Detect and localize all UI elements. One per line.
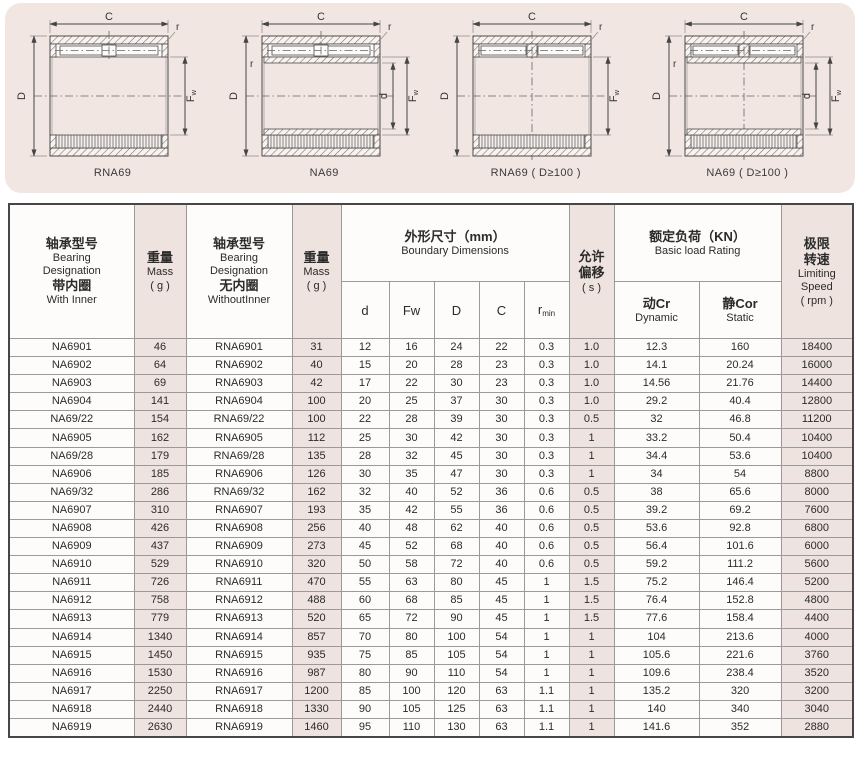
- cell-bore-d: 75: [341, 646, 389, 664]
- cell-bore-d: 85: [341, 682, 389, 700]
- col-header-raceway-fw: Fw: [389, 282, 434, 339]
- cell-designation-without-inner: RNA6908: [186, 519, 292, 537]
- cell-limiting-speed-rpm: 10400: [781, 429, 853, 447]
- cell-designation-with-inner: NA6907: [9, 501, 134, 519]
- cell-designation-without-inner: RNA69/22: [186, 411, 292, 429]
- cell-chamfer-rmin: 0.6: [524, 519, 569, 537]
- cell-mass-with-inner-g: 162: [134, 429, 186, 447]
- svg-text:Fw: Fw: [407, 89, 420, 102]
- cell-limiting-speed-rpm: 18400: [781, 339, 853, 357]
- cell-outer-d: 68: [434, 538, 479, 556]
- col-header-allowable-offset: 允许 偏移 ( s ): [569, 204, 614, 339]
- bearing-spec-table: 轴承型号 Bearing Designation 带内圈 With Inner …: [8, 203, 854, 738]
- cell-designation-with-inner: NA69/22: [9, 411, 134, 429]
- cell-limiting-speed-rpm: 3760: [781, 646, 853, 664]
- cell-chamfer-rmin: 0.3: [524, 339, 569, 357]
- header-zh: 轴承型号: [187, 236, 292, 252]
- header-en: Basic load Rating: [615, 245, 781, 258]
- table-row: NA6907310RNA6907193354255360.60.539.269.…: [9, 501, 853, 519]
- cell-outer-d: 72: [434, 556, 479, 574]
- cell-raceway-fw: 58: [389, 556, 434, 574]
- cell-outer-d: 120: [434, 682, 479, 700]
- cell-mass-with-inner-g: 779: [134, 610, 186, 628]
- header-en: Bearing: [10, 252, 134, 265]
- header-en: Dynamic: [615, 312, 699, 325]
- cell-limiting-speed-rpm: 14400: [781, 375, 853, 393]
- header-zh: 偏移: [570, 265, 614, 281]
- cell-outer-d: 90: [434, 610, 479, 628]
- header-en: Designation: [187, 265, 292, 278]
- cell-width-c: 45: [479, 592, 524, 610]
- cell-bore-d: 65: [341, 610, 389, 628]
- table-row: NA69151450RNA691593575851055411105.6221.…: [9, 646, 853, 664]
- cell-limiting-speed-rpm: 4400: [781, 610, 853, 628]
- col-header-outer-d: D: [434, 282, 479, 339]
- cell-designation-with-inner: NA6915: [9, 646, 134, 664]
- cell-designation-with-inner: NA6910: [9, 556, 134, 574]
- rmin-sub: min: [542, 309, 555, 318]
- cell-limiting-speed-rpm: 2880: [781, 718, 853, 737]
- cell-mass-with-inner-g: 437: [134, 538, 186, 556]
- col-header-limiting-speed: 极限 转速 Limiting Speed ( rpm ): [781, 204, 853, 339]
- cell-designation-with-inner: NA6902: [9, 357, 134, 375]
- cell-allowable-offset-s: 1: [569, 465, 614, 483]
- cell-raceway-fw: 52: [389, 538, 434, 556]
- cell-designation-with-inner: NA6912: [9, 592, 134, 610]
- cell-designation-with-inner: NA6914: [9, 628, 134, 646]
- svg-text:r: r: [250, 59, 254, 70]
- cell-mass-without-inner-g: 488: [292, 592, 341, 610]
- cell-outer-d: 130: [434, 718, 479, 737]
- cell-designation-with-inner: NA6916: [9, 664, 134, 682]
- cell-bore-d: 45: [341, 538, 389, 556]
- diagram-panel: CDFwrRNA69 CDdFwrrNA69 CDFwrRNA69 ( D≥10…: [5, 3, 855, 193]
- cell-chamfer-rmin: 0.6: [524, 556, 569, 574]
- cell-chamfer-rmin: 0.6: [524, 501, 569, 519]
- col-header-chamfer-rmin: rmin: [524, 282, 569, 339]
- col-header-mass-without-inner: 重量 Mass ( g ): [292, 204, 341, 339]
- cell-width-c: 63: [479, 682, 524, 700]
- cell-mass-with-inner-g: 69: [134, 375, 186, 393]
- cell-limiting-speed-rpm: 11200: [781, 411, 853, 429]
- cell-dynamic-cr: 141.6: [614, 718, 699, 737]
- cell-bore-d: 35: [341, 501, 389, 519]
- cell-dynamic-cr: 75.2: [614, 574, 699, 592]
- cell-designation-without-inner: RNA6912: [186, 592, 292, 610]
- cell-designation-without-inner: RNA6916: [186, 664, 292, 682]
- table-row: NA6912758RNA69124886068854511.576.4152.8…: [9, 592, 853, 610]
- header-zh: 重量: [135, 250, 186, 266]
- cell-allowable-offset-s: 0.5: [569, 483, 614, 501]
- cell-limiting-speed-rpm: 6000: [781, 538, 853, 556]
- cell-bore-d: 25: [341, 429, 389, 447]
- cell-chamfer-rmin: 0.3: [524, 393, 569, 411]
- cell-width-c: 40: [479, 519, 524, 537]
- col-group-boundary-dimensions: 外形尺寸（mm） Boundary Dimensions: [341, 204, 569, 282]
- diagram-with-inner: CDdFwrrNA69: [220, 6, 428, 179]
- cell-static-cor: 320: [699, 682, 781, 700]
- cell-mass-without-inner-g: 112: [292, 429, 341, 447]
- cell-mass-without-inner-g: 40: [292, 357, 341, 375]
- cell-outer-d: 55: [434, 501, 479, 519]
- diagram-without-inner: CDFwrRNA69: [9, 6, 217, 179]
- cell-outer-d: 85: [434, 592, 479, 610]
- table-row: NA69161530RNA691698780901105411109.6238.…: [9, 664, 853, 682]
- header-zh: 允许: [570, 249, 614, 265]
- cell-outer-d: 28: [434, 357, 479, 375]
- bearing-cross-section: CDdFwrr: [645, 6, 850, 166]
- svg-text:d: d: [801, 93, 813, 99]
- header-en: Designation: [10, 265, 134, 278]
- cell-raceway-fw: 100: [389, 682, 434, 700]
- cell-allowable-offset-s: 1: [569, 429, 614, 447]
- cell-designation-with-inner: NA6906: [9, 465, 134, 483]
- cell-raceway-fw: 20: [389, 357, 434, 375]
- cell-allowable-offset-s: 1: [569, 447, 614, 465]
- cell-mass-without-inner-g: 126: [292, 465, 341, 483]
- svg-text:d: d: [378, 93, 390, 99]
- header-unit: ( rpm ): [782, 294, 853, 308]
- cell-raceway-fw: 16: [389, 339, 434, 357]
- cell-width-c: 63: [479, 700, 524, 718]
- svg-text:C: C: [105, 11, 113, 23]
- cell-bore-d: 22: [341, 411, 389, 429]
- col-header-bore-d: d: [341, 282, 389, 339]
- cell-dynamic-cr: 77.6: [614, 610, 699, 628]
- cell-allowable-offset-s: 0.5: [569, 411, 614, 429]
- cell-raceway-fw: 110: [389, 718, 434, 737]
- table-row: NA69141340RNA691485770801005411104213.64…: [9, 628, 853, 646]
- cell-allowable-offset-s: 1.0: [569, 357, 614, 375]
- cell-mass-without-inner-g: 162: [292, 483, 341, 501]
- cell-allowable-offset-s: 1: [569, 718, 614, 737]
- cell-designation-without-inner: RNA6914: [186, 628, 292, 646]
- cell-chamfer-rmin: 1: [524, 574, 569, 592]
- cell-limiting-speed-rpm: 4800: [781, 592, 853, 610]
- table-row: NA690146RNA690131121624220.31.012.316018…: [9, 339, 853, 357]
- cell-static-cor: 158.4: [699, 610, 781, 628]
- header-zh: 静Cor: [700, 296, 781, 312]
- cell-designation-with-inner: NA69/32: [9, 483, 134, 501]
- cell-mass-without-inner-g: 987: [292, 664, 341, 682]
- cell-chamfer-rmin: 1: [524, 592, 569, 610]
- cell-raceway-fw: 22: [389, 375, 434, 393]
- table-row: NA69/28179RNA69/28135283245300.3134.453.…: [9, 447, 853, 465]
- cell-chamfer-rmin: 1: [524, 610, 569, 628]
- cell-raceway-fw: 68: [389, 592, 434, 610]
- cell-designation-without-inner: RNA6901: [186, 339, 292, 357]
- cell-mass-without-inner-g: 1200: [292, 682, 341, 700]
- header-zh: 轴承型号: [10, 236, 134, 252]
- cell-outer-d: 45: [434, 447, 479, 465]
- cell-bore-d: 40: [341, 519, 389, 537]
- cell-static-cor: 54: [699, 465, 781, 483]
- table-body: NA690146RNA690131121624220.31.012.316018…: [9, 339, 853, 738]
- cell-chamfer-rmin: 0.3: [524, 357, 569, 375]
- cell-static-cor: 221.6: [699, 646, 781, 664]
- col-group-basic-load-rating: 额定负荷（KN） Basic load Rating: [614, 204, 781, 282]
- cell-chamfer-rmin: 0.6: [524, 538, 569, 556]
- svg-text:D: D: [228, 92, 240, 100]
- cell-mass-without-inner-g: 273: [292, 538, 341, 556]
- diagram-caption: NA69: [310, 167, 339, 179]
- cell-static-cor: 46.8: [699, 411, 781, 429]
- cell-static-cor: 238.4: [699, 664, 781, 682]
- cell-designation-without-inner: RNA6907: [186, 501, 292, 519]
- cell-outer-d: 52: [434, 483, 479, 501]
- table-row: NA6905162RNA6905112253042300.3133.250.41…: [9, 429, 853, 447]
- cell-raceway-fw: 105: [389, 700, 434, 718]
- col-header-designation-without-inner: 轴承型号 Bearing Designation 无内圈 WithoutInne…: [186, 204, 292, 339]
- bearing-cross-section: CDFwr: [10, 6, 215, 166]
- col-header-designation-with-inner: 轴承型号 Bearing Designation 带内圈 With Inner: [9, 204, 134, 339]
- table-row: NA6913779RNA69135206572904511.577.6158.4…: [9, 610, 853, 628]
- cell-dynamic-cr: 39.2: [614, 501, 699, 519]
- cell-allowable-offset-s: 0.5: [569, 501, 614, 519]
- cell-dynamic-cr: 105.6: [614, 646, 699, 664]
- svg-text:r: r: [599, 22, 603, 33]
- cell-bore-d: 60: [341, 592, 389, 610]
- cell-allowable-offset-s: 1.0: [569, 393, 614, 411]
- cell-width-c: 40: [479, 556, 524, 574]
- cell-allowable-offset-s: 1: [569, 628, 614, 646]
- cell-allowable-offset-s: 1.0: [569, 339, 614, 357]
- header-en: With Inner: [10, 294, 134, 307]
- cell-designation-without-inner: RNA6904: [186, 393, 292, 411]
- cell-designation-without-inner: RNA6917: [186, 682, 292, 700]
- cell-dynamic-cr: 34: [614, 465, 699, 483]
- cell-limiting-speed-rpm: 8800: [781, 465, 853, 483]
- cell-designation-with-inner: NA6903: [9, 375, 134, 393]
- cell-outer-d: 30: [434, 375, 479, 393]
- cell-width-c: 40: [479, 538, 524, 556]
- header-zh: 无内圈: [187, 278, 292, 294]
- cell-chamfer-rmin: 1.1: [524, 718, 569, 737]
- cell-dynamic-cr: 104: [614, 628, 699, 646]
- cell-allowable-offset-s: 0.5: [569, 538, 614, 556]
- cell-static-cor: 352: [699, 718, 781, 737]
- header-zh: 外形尺寸（mm）: [342, 229, 569, 245]
- spec-table-wrap: 轴承型号 Bearing Designation 带内圈 With Inner …: [8, 203, 852, 738]
- table-row: NA6906185RNA6906126303547300.3134548800: [9, 465, 853, 483]
- cell-width-c: 45: [479, 610, 524, 628]
- cell-outer-d: 42: [434, 429, 479, 447]
- cell-designation-without-inner: RNA6906: [186, 465, 292, 483]
- header-en: Bearing: [187, 252, 292, 265]
- cell-outer-d: 24: [434, 339, 479, 357]
- cell-allowable-offset-s: 1: [569, 664, 614, 682]
- header-unit: ( g ): [293, 279, 341, 293]
- bearing-cross-section: CDFwr: [433, 6, 638, 166]
- cell-chamfer-rmin: 1: [524, 664, 569, 682]
- cell-outer-d: 100: [434, 628, 479, 646]
- cell-width-c: 63: [479, 718, 524, 737]
- svg-text:C: C: [317, 11, 325, 23]
- cell-mass-with-inner-g: 758: [134, 592, 186, 610]
- cell-raceway-fw: 85: [389, 646, 434, 664]
- cell-chamfer-rmin: 0.3: [524, 375, 569, 393]
- cell-designation-with-inner: NA6911: [9, 574, 134, 592]
- table-row: NA6908426RNA6908256404862400.60.553.692.…: [9, 519, 853, 537]
- cell-static-cor: 53.6: [699, 447, 781, 465]
- cell-dynamic-cr: 135.2: [614, 682, 699, 700]
- cell-mass-without-inner-g: 470: [292, 574, 341, 592]
- cell-bore-d: 55: [341, 574, 389, 592]
- table-row: NA69182440RNA6918133090105125631.1114034…: [9, 700, 853, 718]
- cell-static-cor: 20.24: [699, 357, 781, 375]
- table-row: NA69/22154RNA69/22100222839300.30.53246.…: [9, 411, 853, 429]
- cell-limiting-speed-rpm: 3520: [781, 664, 853, 682]
- cell-mass-with-inner-g: 726: [134, 574, 186, 592]
- cell-mass-with-inner-g: 185: [134, 465, 186, 483]
- cell-bore-d: 30: [341, 465, 389, 483]
- cell-width-c: 30: [479, 429, 524, 447]
- cell-width-c: 30: [479, 447, 524, 465]
- cell-mass-with-inner-g: 64: [134, 357, 186, 375]
- header-zh: 转速: [782, 252, 853, 268]
- cell-limiting-speed-rpm: 5600: [781, 556, 853, 574]
- cell-dynamic-cr: 109.6: [614, 664, 699, 682]
- cell-designation-with-inner: NA6901: [9, 339, 134, 357]
- cell-designation-with-inner: NA6918: [9, 700, 134, 718]
- cell-mass-with-inner-g: 46: [134, 339, 186, 357]
- cell-static-cor: 111.2: [699, 556, 781, 574]
- cell-mass-without-inner-g: 935: [292, 646, 341, 664]
- cell-dynamic-cr: 33.2: [614, 429, 699, 447]
- cell-limiting-speed-rpm: 10400: [781, 447, 853, 465]
- cell-width-c: 54: [479, 628, 524, 646]
- cell-designation-without-inner: RNA69/28: [186, 447, 292, 465]
- cell-allowable-offset-s: 1: [569, 700, 614, 718]
- cell-designation-without-inner: RNA6918: [186, 700, 292, 718]
- cell-dynamic-cr: 14.56: [614, 375, 699, 393]
- svg-text:D: D: [651, 92, 663, 100]
- cell-designation-with-inner: NA6917: [9, 682, 134, 700]
- bearing-cross-section: CDdFwrr: [222, 6, 427, 166]
- cell-mass-with-inner-g: 310: [134, 501, 186, 519]
- cell-width-c: 36: [479, 483, 524, 501]
- cell-raceway-fw: 72: [389, 610, 434, 628]
- cell-mass-without-inner-g: 100: [292, 393, 341, 411]
- cell-raceway-fw: 32: [389, 447, 434, 465]
- cell-designation-with-inner: NA69/28: [9, 447, 134, 465]
- cell-width-c: 45: [479, 574, 524, 592]
- cell-raceway-fw: 28: [389, 411, 434, 429]
- cell-dynamic-cr: 38: [614, 483, 699, 501]
- cell-dynamic-cr: 59.2: [614, 556, 699, 574]
- cell-designation-without-inner: RNA6903: [186, 375, 292, 393]
- cell-width-c: 30: [479, 465, 524, 483]
- cell-width-c: 54: [479, 664, 524, 682]
- cell-raceway-fw: 48: [389, 519, 434, 537]
- table-row: NA690369RNA690342172230230.31.014.5621.7…: [9, 375, 853, 393]
- cell-allowable-offset-s: 0.5: [569, 519, 614, 537]
- header-unit: ( s ): [570, 281, 614, 295]
- header-en: Speed: [782, 281, 853, 294]
- cell-designation-without-inner: RNA6905: [186, 429, 292, 447]
- table-row: NA690264RNA690240152028230.31.014.120.24…: [9, 357, 853, 375]
- cell-chamfer-rmin: 1: [524, 646, 569, 664]
- cell-mass-without-inner-g: 135: [292, 447, 341, 465]
- svg-text:Fw: Fw: [830, 89, 843, 102]
- cell-bore-d: 12: [341, 339, 389, 357]
- cell-designation-without-inner: RNA6913: [186, 610, 292, 628]
- svg-text:r: r: [388, 22, 392, 33]
- cell-mass-without-inner-g: 256: [292, 519, 341, 537]
- cell-dynamic-cr: 14.1: [614, 357, 699, 375]
- cell-mass-with-inner-g: 2250: [134, 682, 186, 700]
- cell-chamfer-rmin: 1.1: [524, 682, 569, 700]
- cell-allowable-offset-s: 1.5: [569, 574, 614, 592]
- cell-width-c: 30: [479, 411, 524, 429]
- header-zh: 极限: [782, 236, 853, 252]
- table-row: NA69172250RNA6917120085100120631.11135.2…: [9, 682, 853, 700]
- cell-mass-with-inner-g: 2630: [134, 718, 186, 737]
- svg-text:C: C: [528, 11, 536, 23]
- cell-allowable-offset-s: 0.5: [569, 556, 614, 574]
- header-en: Mass: [135, 266, 186, 279]
- table-row: NA6909437RNA6909273455268400.60.556.4101…: [9, 538, 853, 556]
- table-header: 轴承型号 Bearing Designation 带内圈 With Inner …: [9, 204, 853, 339]
- cell-limiting-speed-rpm: 5200: [781, 574, 853, 592]
- cell-limiting-speed-rpm: 16000: [781, 357, 853, 375]
- cell-mass-with-inner-g: 426: [134, 519, 186, 537]
- cell-outer-d: 80: [434, 574, 479, 592]
- cell-mass-without-inner-g: 193: [292, 501, 341, 519]
- diagram-caption: RNA69 ( D≥100 ): [491, 167, 581, 179]
- cell-designation-with-inner: NA6908: [9, 519, 134, 537]
- cell-mass-without-inner-g: 520: [292, 610, 341, 628]
- cell-static-cor: 146.4: [699, 574, 781, 592]
- header-en: Mass: [293, 266, 341, 279]
- cell-width-c: 30: [479, 393, 524, 411]
- cell-mass-without-inner-g: 320: [292, 556, 341, 574]
- cell-raceway-fw: 35: [389, 465, 434, 483]
- cell-outer-d: 110: [434, 664, 479, 682]
- cell-designation-with-inner: NA6905: [9, 429, 134, 447]
- cell-mass-with-inner-g: 154: [134, 411, 186, 429]
- cell-designation-without-inner: RNA6909: [186, 538, 292, 556]
- cell-designation-without-inner: RNA69/32: [186, 483, 292, 501]
- cell-chamfer-rmin: 1.1: [524, 700, 569, 718]
- svg-text:r: r: [176, 22, 180, 33]
- cell-allowable-offset-s: 1: [569, 682, 614, 700]
- cell-bore-d: 70: [341, 628, 389, 646]
- diagram-with-inner-d100: CDdFwrrNA69 ( D≥100 ): [643, 6, 851, 179]
- cell-mass-without-inner-g: 1460: [292, 718, 341, 737]
- cell-designation-without-inner: RNA6902: [186, 357, 292, 375]
- cell-raceway-fw: 80: [389, 628, 434, 646]
- cell-designation-without-inner: RNA6911: [186, 574, 292, 592]
- cell-bore-d: 50: [341, 556, 389, 574]
- cell-chamfer-rmin: 1: [524, 628, 569, 646]
- cell-width-c: 23: [479, 375, 524, 393]
- cell-mass-with-inner-g: 286: [134, 483, 186, 501]
- cell-static-cor: 40.4: [699, 393, 781, 411]
- cell-static-cor: 340: [699, 700, 781, 718]
- cell-mass-with-inner-g: 179: [134, 447, 186, 465]
- cell-static-cor: 101.6: [699, 538, 781, 556]
- diagram-caption: NA69 ( D≥100 ): [706, 167, 788, 179]
- header-unit: ( g ): [135, 279, 186, 293]
- cell-chamfer-rmin: 0.3: [524, 429, 569, 447]
- cell-mass-without-inner-g: 1330: [292, 700, 341, 718]
- cell-designation-with-inner: NA6904: [9, 393, 134, 411]
- cell-dynamic-cr: 140: [614, 700, 699, 718]
- cell-dynamic-cr: 34.4: [614, 447, 699, 465]
- cell-static-cor: 160: [699, 339, 781, 357]
- cell-static-cor: 213.6: [699, 628, 781, 646]
